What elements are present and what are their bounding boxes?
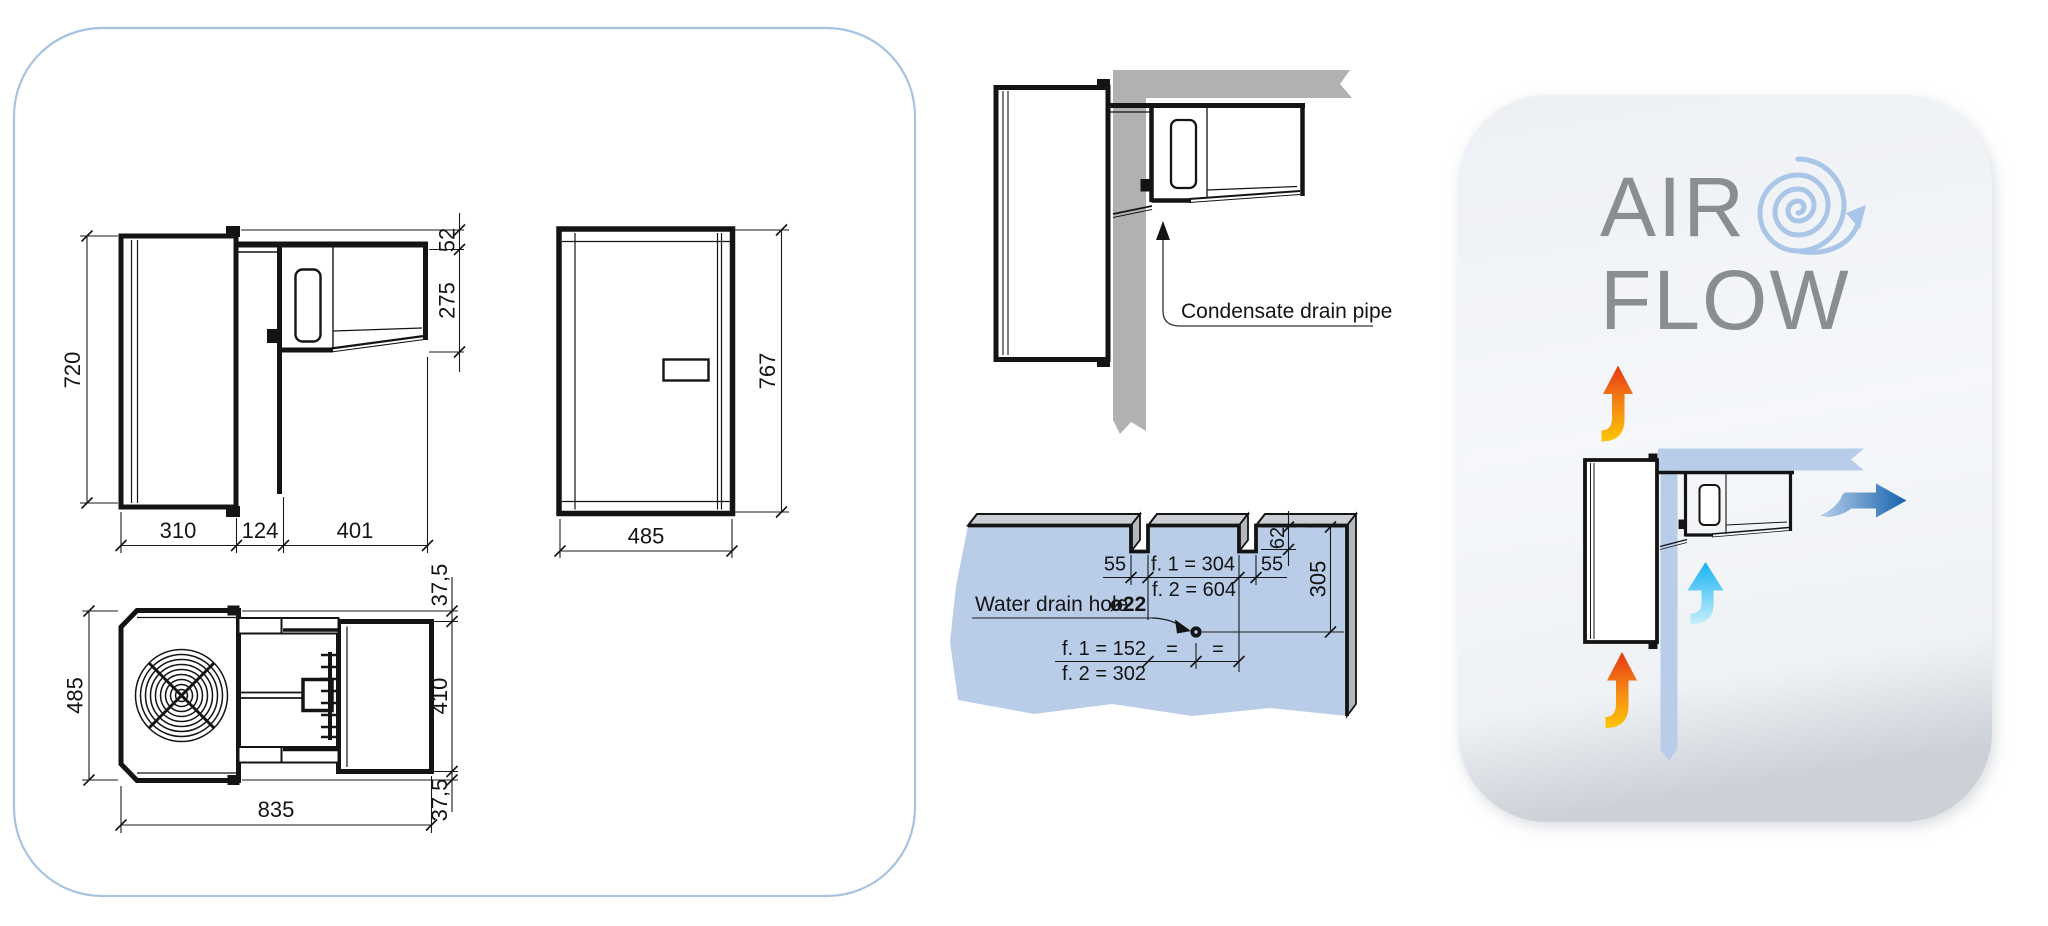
pointer-arrow-icon xyxy=(1156,221,1170,240)
water-drain-diagram: 55 f. 1 = 304 55 f. 2 = 604 62 305 Water… xyxy=(950,511,1356,716)
ceiling-wall xyxy=(1113,70,1352,98)
equal-mark-right: = xyxy=(1212,639,1224,661)
airflow-title-air: AIR xyxy=(1600,160,1746,254)
dim-notch-right: 55 xyxy=(1261,554,1283,576)
dim-top-width: 485 xyxy=(63,677,88,714)
dim-side-depth-outside: 401 xyxy=(337,518,374,543)
room-wall xyxy=(1113,98,1146,434)
equal-mark-left: = xyxy=(1166,639,1178,661)
water-drain-label: Water drain hole xyxy=(975,593,1128,616)
condensate-drain-diagram: Condensate drain pipe xyxy=(996,70,1392,434)
dim-f2-span: f. 2 = 604 xyxy=(1152,579,1236,601)
nameplate xyxy=(664,360,709,381)
airflow-wall-strip xyxy=(1661,471,1678,762)
dim-top-margin-bottom: 37,5 xyxy=(427,779,452,822)
dim-side-top-offset: 52 xyxy=(435,228,460,252)
airflow-ceiling-strip xyxy=(1658,449,1864,471)
dim-top-length: 835 xyxy=(258,797,295,822)
dim-f2-offset: f. 2 = 302 xyxy=(1062,663,1146,685)
dim-notch-depth: 62 xyxy=(1267,527,1289,549)
dim-side-height: 720 xyxy=(60,352,85,389)
water-drain-diameter: ø22 xyxy=(1110,593,1146,616)
dim-f1-span: f. 1 = 304 xyxy=(1151,554,1235,576)
condensate-drain-label: Condensate drain pipe xyxy=(1181,300,1392,323)
dim-front-width: 485 xyxy=(628,524,665,549)
monoblock-datasheet-figure: 720 310 124 401 52 275 xyxy=(0,0,2048,926)
dimensional-drawings-panel: 720 310 124 401 52 275 xyxy=(14,28,915,896)
dim-side-depth-inside: 310 xyxy=(160,518,197,543)
dim-notch-left: 55 xyxy=(1104,554,1126,576)
dim-hole-drop: 305 xyxy=(1306,561,1331,598)
airflow-title-flow: FLOW xyxy=(1600,253,1851,347)
dim-top-margin-top: 37,5 xyxy=(427,564,452,607)
dim-f1-offset: f. 1 = 152 xyxy=(1062,638,1146,660)
airflow-panel: AIR FLOW xyxy=(1458,95,1992,822)
dim-side-wall-thickness: 124 xyxy=(242,518,279,543)
cold-room-wall-panel xyxy=(950,526,1347,717)
dim-front-height: 767 xyxy=(755,353,780,390)
dim-top-evaporator-depth: 410 xyxy=(427,678,452,715)
dim-side-condenser-height: 275 xyxy=(435,282,460,319)
